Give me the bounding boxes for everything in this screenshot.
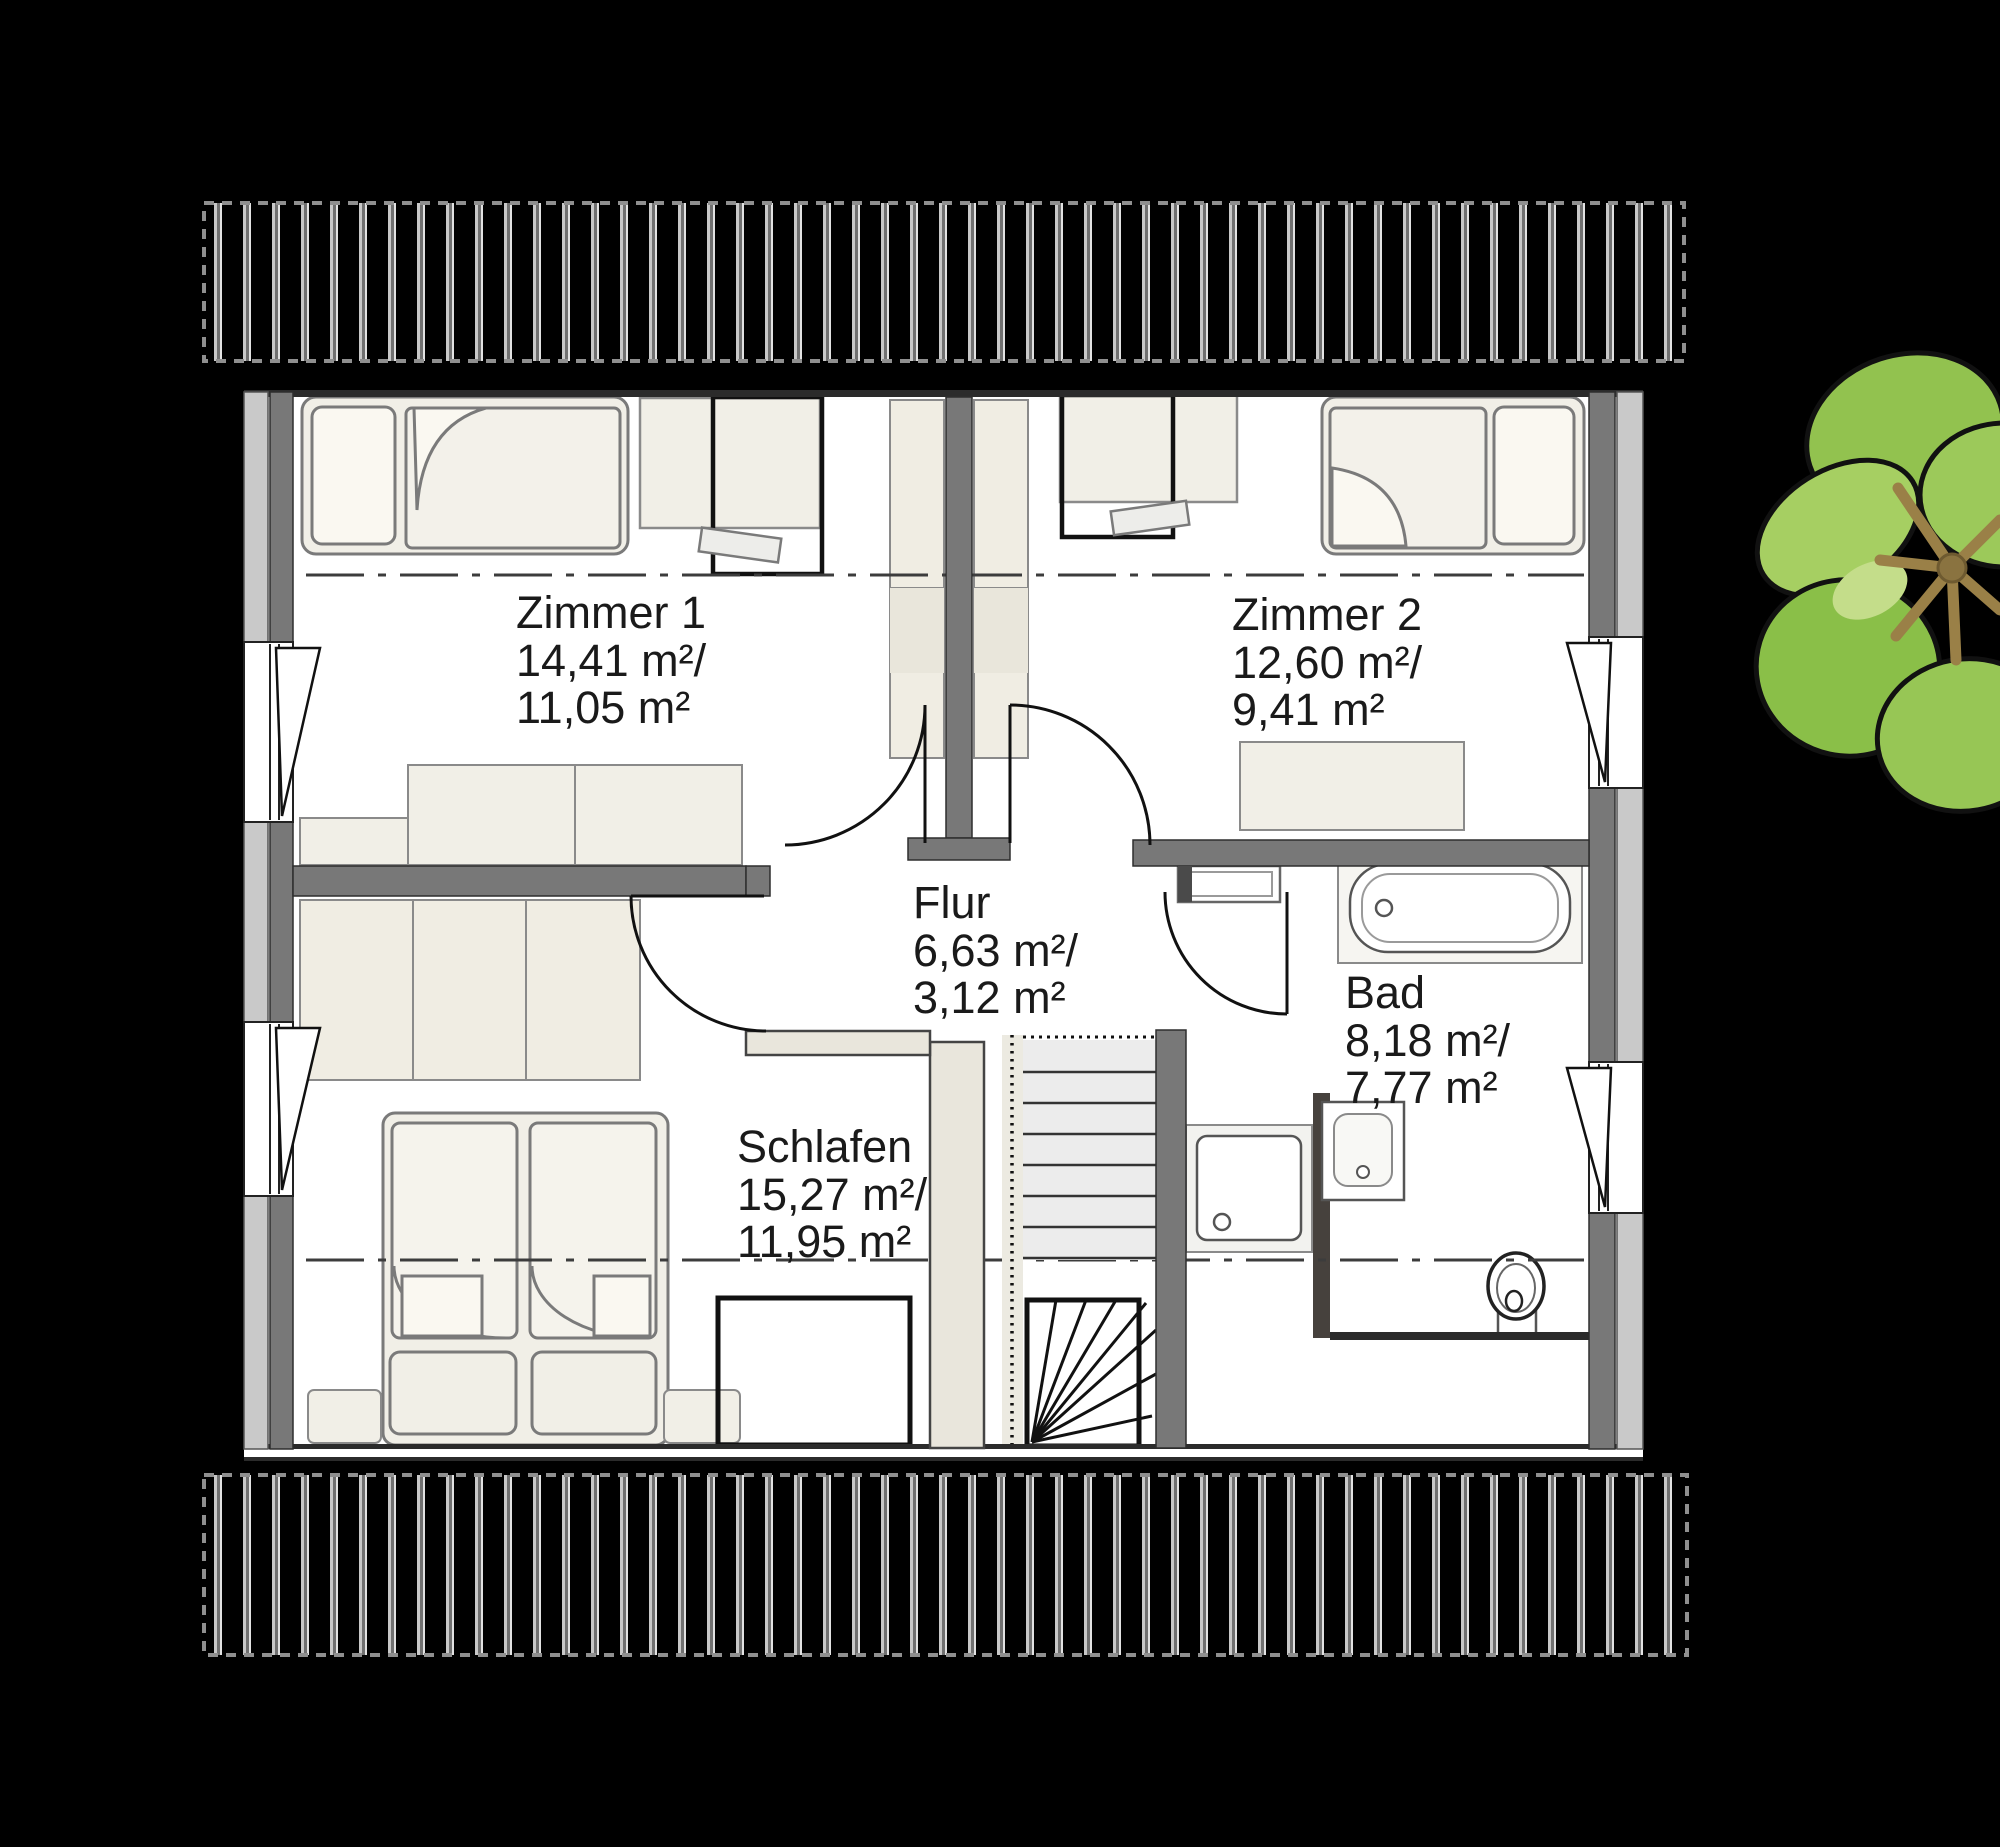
wall-schlafen-stair	[930, 1042, 984, 1448]
shower-drain	[1214, 1214, 1230, 1230]
zimmer1-gross-area: 14,41 m²/	[516, 635, 707, 686]
zimmer1-label: Zimmer 1	[516, 587, 706, 638]
nightstand-right	[664, 1390, 740, 1443]
wall-hall-stub	[746, 866, 770, 896]
blanket-fold-corner	[402, 1276, 482, 1336]
floorplan-canvas: Zimmer 1 14,41 m²/ 11,05 m² Zimmer 2 12,…	[0, 0, 2000, 1847]
sideboard-low	[300, 818, 408, 865]
bad-living-area: 7,77 m²	[1345, 1062, 1498, 1113]
stair-railing-strip	[1002, 1035, 1023, 1448]
desk-1	[640, 398, 820, 528]
blanket-fold-corner	[594, 1276, 650, 1336]
sideboard-2	[1240, 742, 1464, 830]
zimmer2-label: Zimmer 2	[1232, 589, 1422, 640]
schlafen-gross-area: 15,27 m²/	[737, 1169, 928, 1220]
wall-exterior-bottom-inner	[244, 1457, 1643, 1461]
trunk	[1938, 554, 1966, 582]
flur-living-area: 3,12 m²	[913, 972, 1066, 1023]
wardrobe-row	[300, 900, 640, 1080]
zimmer1-living-area: 11,05 m²	[516, 682, 690, 733]
schlafen-living-area: 11,95 m²	[737, 1216, 911, 1267]
zimmer2-living-area: 9,41 m²	[1232, 684, 1385, 735]
pillow-left	[390, 1352, 516, 1434]
bed-pillow	[1494, 407, 1574, 544]
zimmer2-gross-area: 12,60 m²/	[1232, 637, 1423, 688]
wardrobe-left	[890, 400, 944, 758]
schlafen-label: Schlafen	[737, 1121, 912, 1172]
desk-2	[1060, 395, 1237, 502]
wardrobe-shade	[890, 588, 944, 673]
tree-top-view-icon	[1733, 328, 2000, 825]
wall-center-vertical	[946, 397, 972, 838]
flur-label: Flur	[913, 877, 991, 928]
wall-center-foot	[908, 838, 1010, 860]
wall-schlafen-hall	[746, 1031, 930, 1055]
pillow-right	[532, 1352, 656, 1434]
bed-pillow	[312, 407, 395, 544]
floorplan-drawing: Zimmer 1 14,41 m²/ 11,05 m² Zimmer 2 12,…	[0, 0, 2000, 1847]
roof-overhang-top	[204, 203, 1684, 361]
staircase	[1002, 1035, 1156, 1448]
flur-gross-area: 6,63 m²/	[913, 925, 1079, 976]
roof-overhang-bottom	[204, 1475, 1687, 1655]
wall-gable-left	[244, 392, 293, 1449]
bad-label: Bad	[1345, 967, 1425, 1018]
wall-exterior-top	[244, 390, 1643, 397]
sink-drain	[1357, 1166, 1369, 1178]
wall-stair-east	[1156, 1030, 1186, 1448]
nightstand-left	[308, 1390, 381, 1443]
wall-bad-south	[1330, 1332, 1589, 1340]
wall-zimmer2-bad	[1133, 840, 1589, 866]
shower-tray	[1197, 1136, 1301, 1240]
wall-bad-door-stub	[1178, 866, 1192, 902]
bathtub-drain	[1376, 900, 1392, 916]
toilet-drain	[1506, 1291, 1522, 1311]
bad-gross-area: 8,18 m²/	[1345, 1015, 1511, 1066]
wardrobe-shade	[974, 588, 1028, 673]
wall-zimmer1-schlafen	[293, 866, 746, 896]
